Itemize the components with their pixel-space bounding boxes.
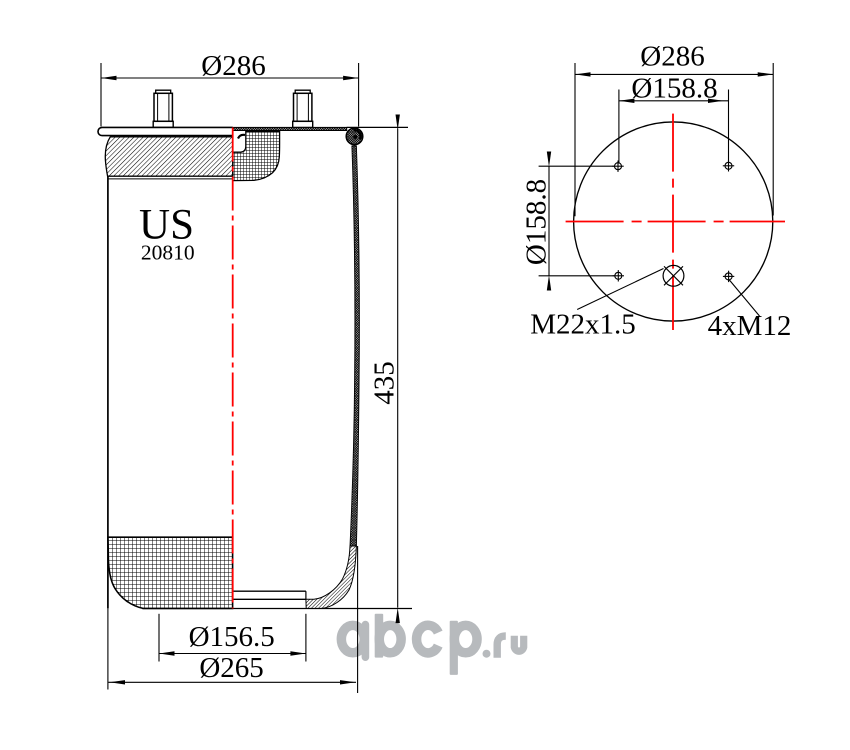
svg-text:Ø265: Ø265 bbox=[199, 652, 263, 684]
svg-text:Ø156.5: Ø156.5 bbox=[189, 621, 275, 653]
svg-text:435: 435 bbox=[369, 361, 401, 405]
svg-text:M22x1.5: M22x1.5 bbox=[530, 309, 636, 341]
svg-text:Ø158.8: Ø158.8 bbox=[521, 179, 553, 265]
svg-text:Ø286: Ø286 bbox=[640, 41, 704, 73]
svg-text:20810: 20810 bbox=[141, 241, 195, 265]
svg-text:Ø286: Ø286 bbox=[201, 50, 265, 82]
svg-text:Ø158.8: Ø158.8 bbox=[631, 73, 717, 105]
svg-text:4xM12: 4xM12 bbox=[708, 310, 792, 342]
